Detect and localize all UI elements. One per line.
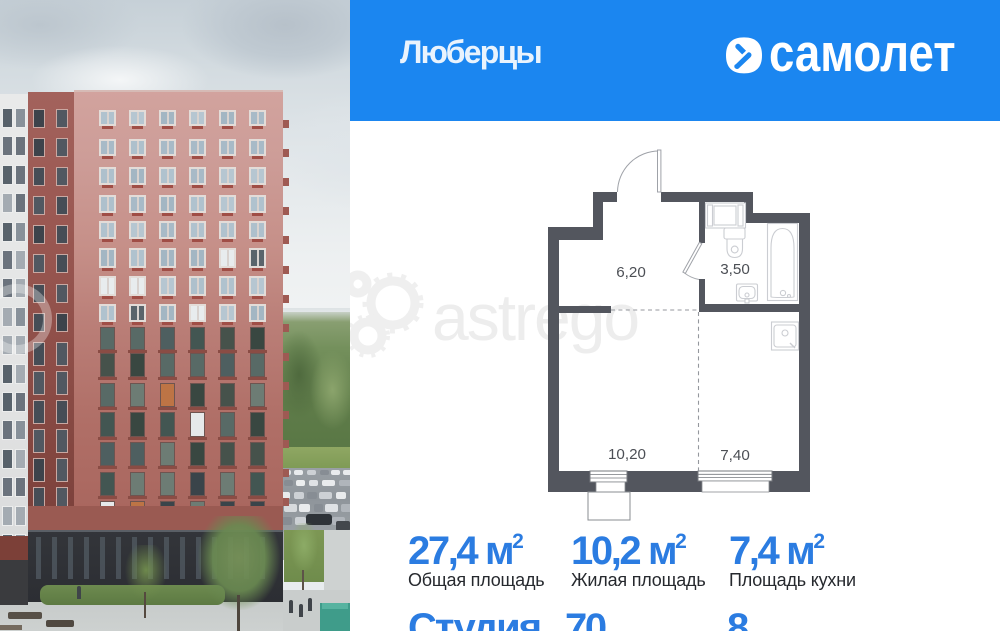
svg-text:7,40: 7,40 <box>720 447 750 464</box>
svg-text:10,20: 10,20 <box>608 446 646 463</box>
svg-text:6,20: 6,20 <box>616 264 646 281</box>
svg-text:самолет: самолет <box>769 35 956 83</box>
svg-text:3,50: 3,50 <box>720 261 750 278</box>
